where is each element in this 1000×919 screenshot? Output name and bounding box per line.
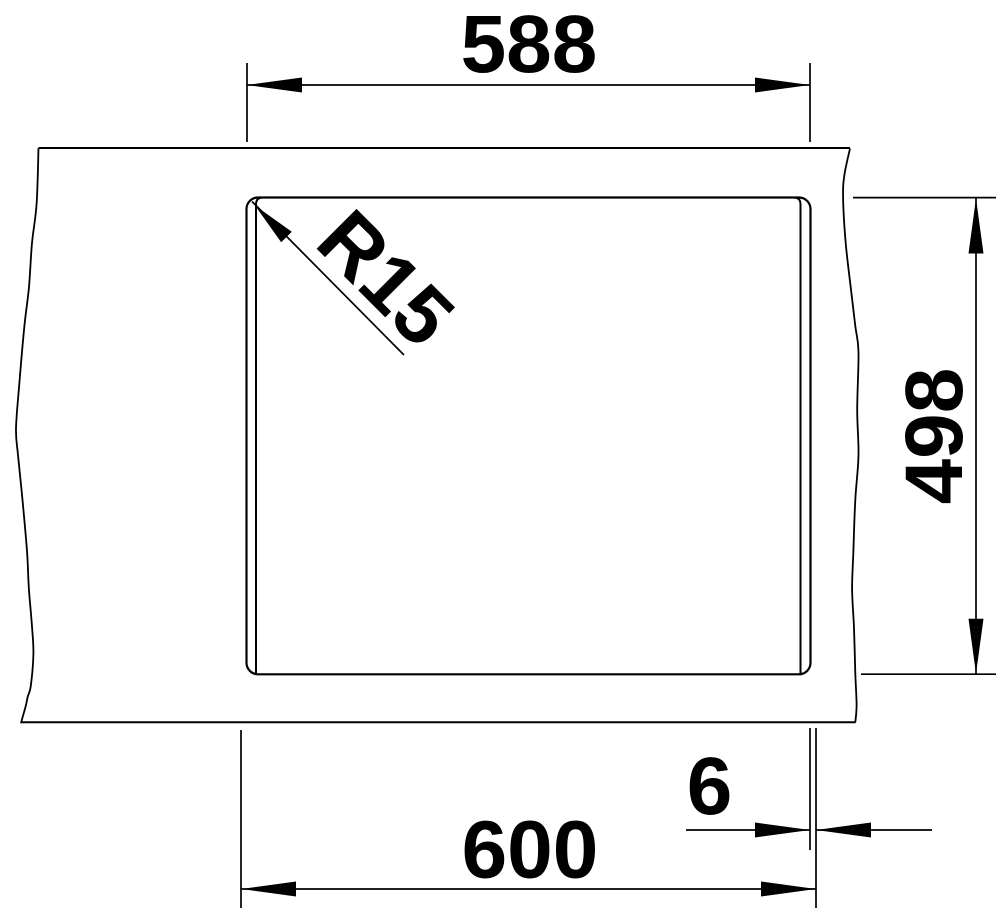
svg-text:588: 588 <box>461 0 598 90</box>
svg-text:R15: R15 <box>300 193 471 364</box>
svg-text:498: 498 <box>889 368 980 505</box>
svg-text:600: 600 <box>462 804 599 895</box>
svg-text:6: 6 <box>687 741 733 832</box>
